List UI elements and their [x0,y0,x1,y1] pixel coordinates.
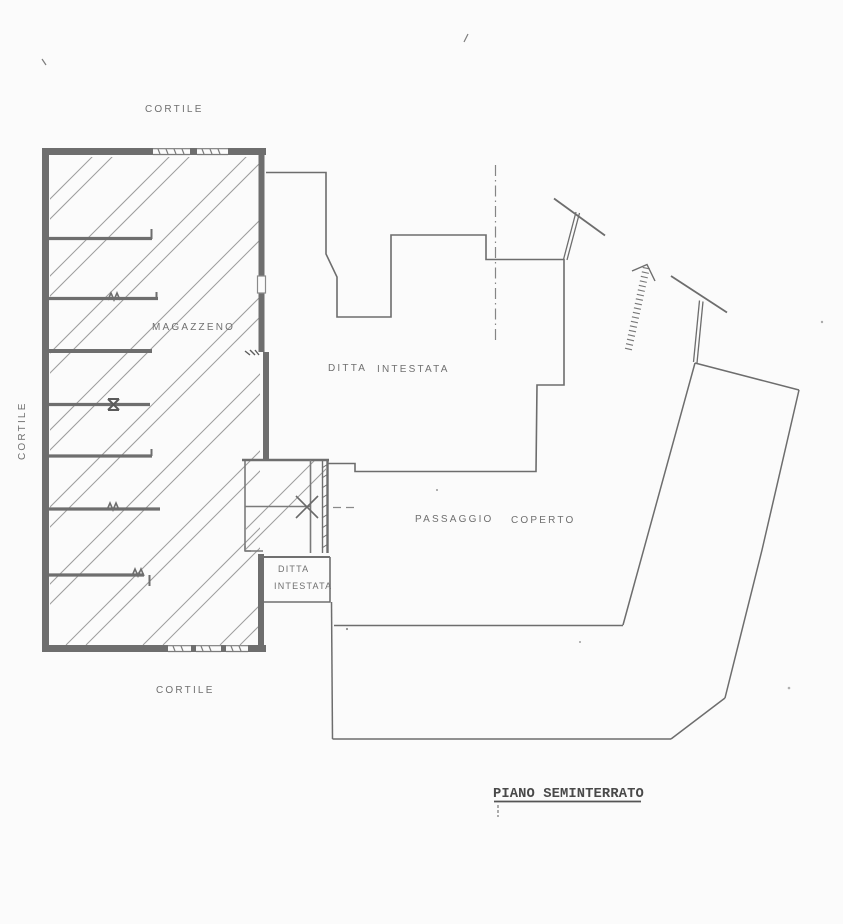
svg-text:INTESTATA: INTESTATA [377,364,450,375]
svg-text:INTESTATA: INTESTATA [274,581,332,591]
svg-text:MAGAZZENO: MAGAZZENO [152,322,235,333]
svg-text:DITTA: DITTA [278,564,309,574]
svg-text:DITTA: DITTA [328,363,367,374]
svg-text:CORTILE: CORTILE [145,104,204,115]
svg-text:PASSAGGIO: PASSAGGIO [415,514,494,525]
svg-text:CORTILE: CORTILE [156,685,215,696]
svg-text:PIANO SEMINTERRATO: PIANO SEMINTERRATO [493,787,644,802]
svg-text:CORTILE: CORTILE [17,401,28,460]
svg-text:COPERTO: COPERTO [511,515,576,526]
